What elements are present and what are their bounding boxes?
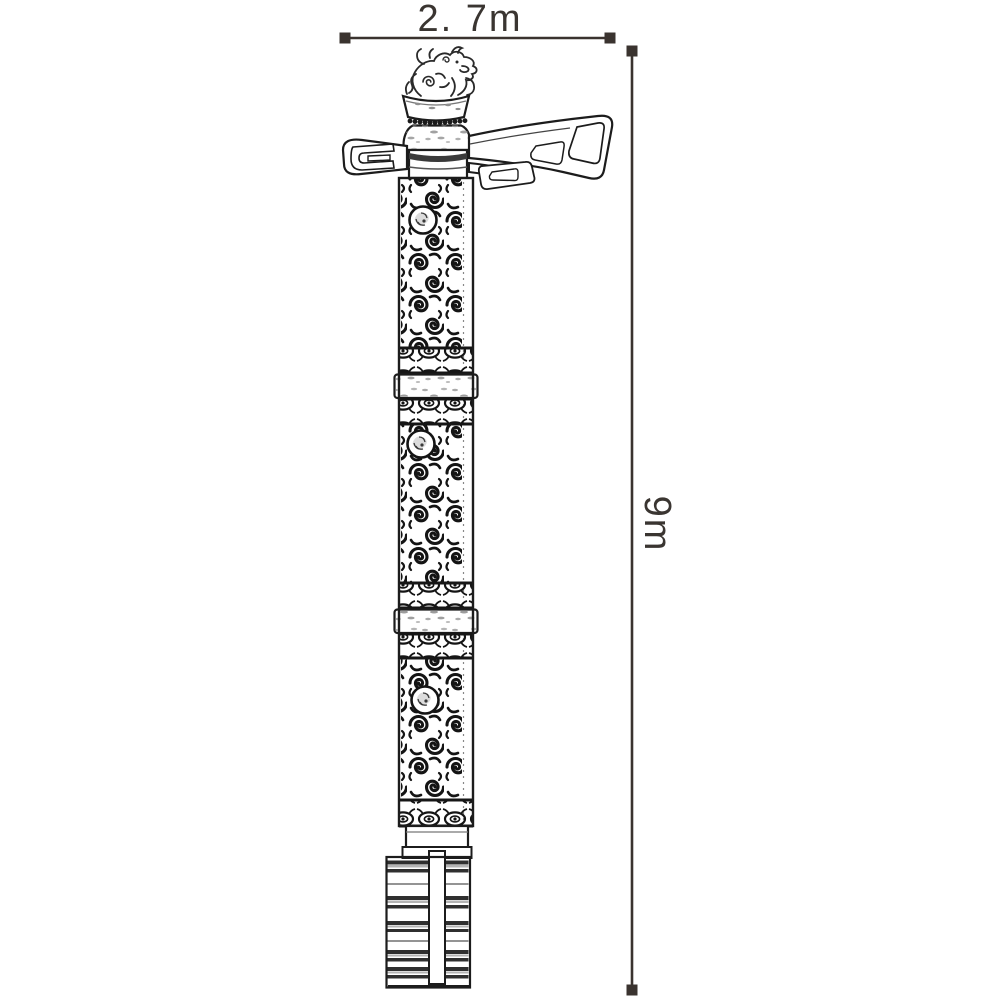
medallion-bottom [412, 687, 439, 714]
width-dimension-label: 2. 7m [417, 0, 522, 40]
base-channel [429, 851, 445, 984]
scroll-section-top [401, 179, 462, 348]
capital [403, 96, 471, 178]
left-cloud-arm [343, 140, 407, 175]
height-dimension-end-top [627, 46, 638, 57]
width-dimension-end-left [340, 33, 351, 44]
width-dimension: 2. 7m [340, 0, 616, 44]
height-dimension: 9m [627, 46, 679, 996]
ornate-band-lower [395, 583, 478, 658]
right-cloud-arm [469, 116, 612, 189]
height-dimension-end-bottom [627, 985, 638, 996]
ornate-band-base [399, 800, 473, 826]
height-dimension-label: 9m [636, 496, 678, 553]
base-collar [406, 826, 468, 848]
pole-structure [343, 47, 612, 987]
width-dimension-end-right [605, 33, 616, 44]
medallion-top [410, 207, 437, 234]
pole-diagram-svg: 2. 7m 9m [0, 0, 1000, 1000]
medallion-middle [408, 431, 435, 458]
ornamental-pole-elevation-drawing: 2. 7m 9m [0, 0, 1000, 1000]
ornate-band-upper [395, 348, 478, 424]
scroll-section-bottom [401, 658, 462, 800]
base [387, 826, 472, 988]
dragon-finial [406, 47, 477, 96]
capital-collar [409, 150, 467, 178]
shaft [395, 178, 478, 826]
